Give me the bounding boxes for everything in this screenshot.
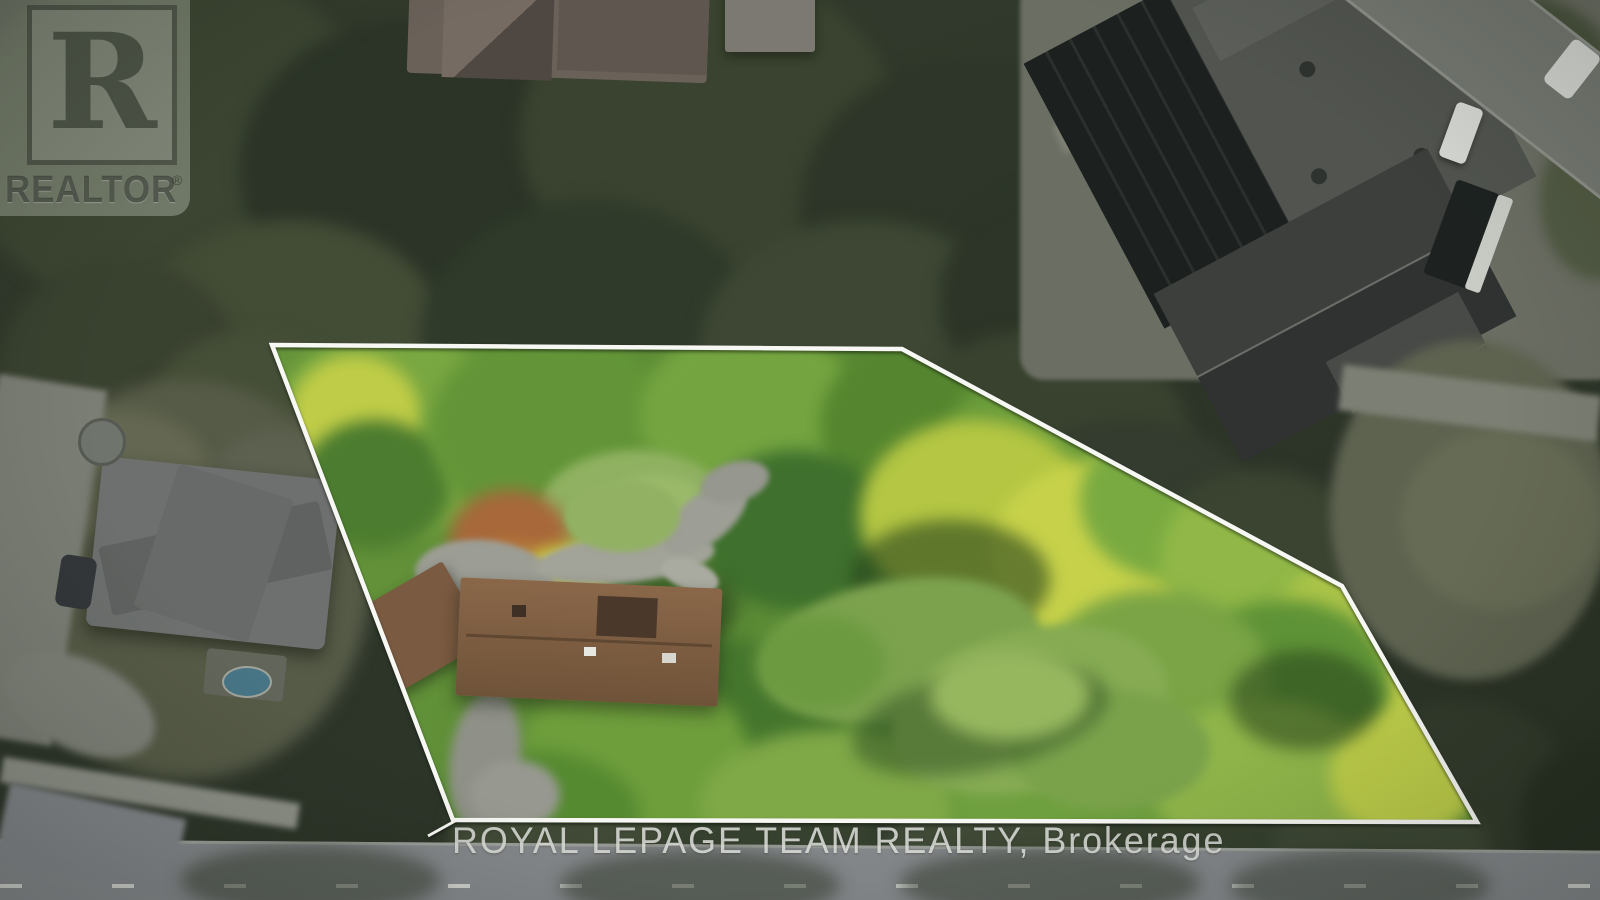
realtor-logo-letter: R xyxy=(47,17,157,149)
realtor-logo-square: R xyxy=(27,5,177,165)
neighbor-house-roof-wing xyxy=(557,0,710,75)
driveway-island-grass xyxy=(565,480,680,552)
aerial-photo: R REALTOR ® ROYAL LEPAGE TEAM REALTY, Br… xyxy=(0,0,1600,900)
registered-trademark-symbol: ® xyxy=(172,172,182,188)
realtor-logo-label: REALTOR xyxy=(5,169,177,212)
neighbor-house-roof-pyramid xyxy=(442,0,555,81)
chimney xyxy=(512,605,526,617)
east-lawn-light xyxy=(1400,430,1600,610)
skylight xyxy=(584,647,596,656)
roof-dormer xyxy=(596,596,658,639)
roof-vent xyxy=(662,653,676,663)
neighbor-house-west xyxy=(82,456,342,680)
realtor-watermark: R REALTOR ® xyxy=(0,0,190,216)
neighbor-house-north xyxy=(725,0,815,52)
trampoline xyxy=(78,418,126,466)
listing-house xyxy=(362,565,722,715)
canopy-shadow xyxy=(1230,650,1380,750)
lawn-shrub xyxy=(755,615,885,710)
neighbor-house-north xyxy=(406,0,709,90)
brokerage-watermark-text: ROYAL LEPAGE TEAM REALTY, Brokerage xyxy=(452,820,1225,862)
lawn-sun-patch xyxy=(930,650,1090,740)
swimming-pool xyxy=(222,666,272,698)
